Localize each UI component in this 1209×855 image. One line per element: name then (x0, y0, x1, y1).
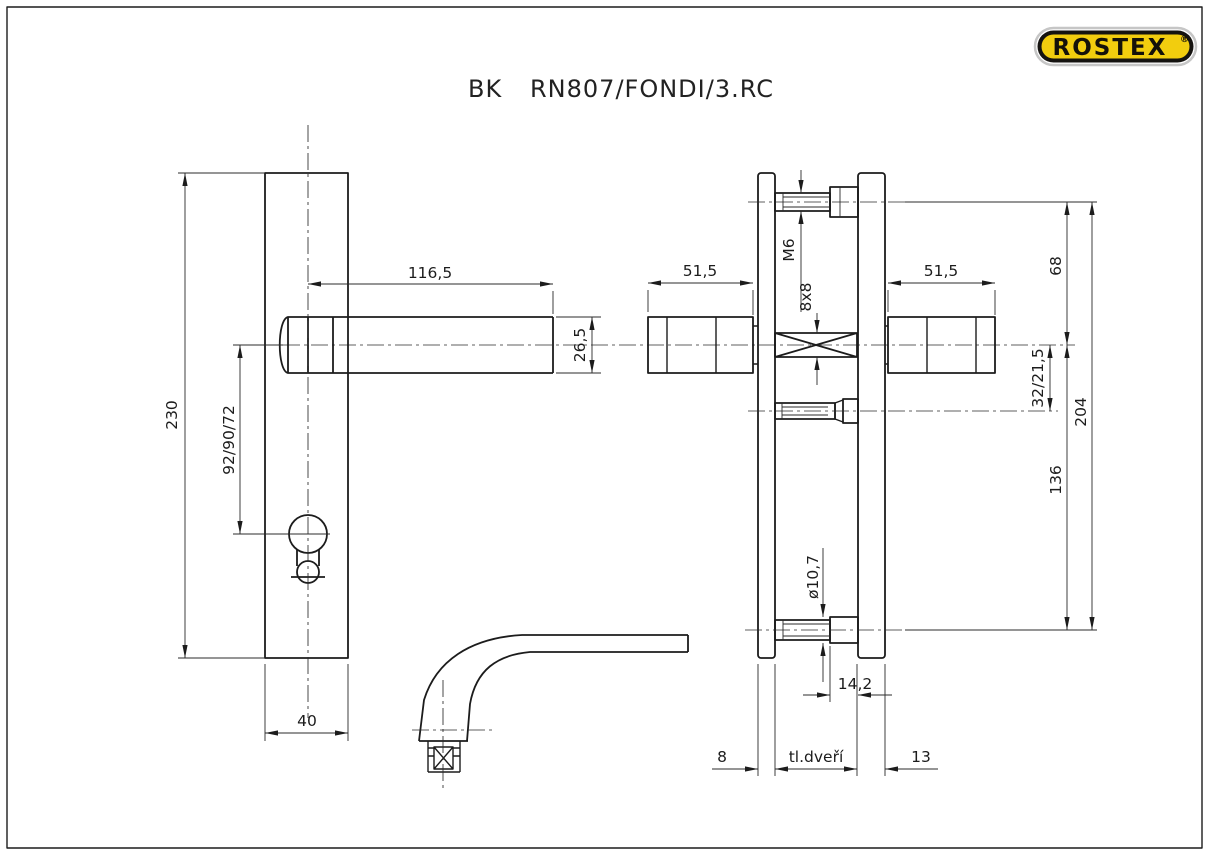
dim-axis-spacing: 92/90/72 (220, 405, 238, 475)
lever-profile-view (412, 635, 688, 792)
dim-screw-thread: M6 (780, 238, 798, 261)
lever-profile-centerlines (412, 680, 492, 792)
inner-plate-side (858, 173, 885, 658)
screw-centerlines (745, 202, 1058, 630)
dim-handle-depth-right: 51,5 (924, 262, 959, 280)
backplate-outline (265, 173, 348, 658)
dim-screw-span: 204 (1072, 397, 1090, 427)
dim-handle-thickness: 26,5 (571, 328, 589, 363)
lever-profile-outline (419, 635, 688, 741)
dim-spindle-size: 8x8 (797, 283, 815, 312)
drawing-frame (7, 7, 1202, 848)
technical-drawing: BK RN807/FONDI/3.RC ROSTEX ® 230 92/90/7… (0, 0, 1209, 855)
dim-plate-width: 40 (297, 712, 317, 730)
side-view: 51,5 51,5 M6 8x8 ø10,7 14,2 68 32/21,5 1… (648, 170, 1097, 776)
dim-top-screw-offset: 68 (1047, 256, 1065, 276)
brand-name: ROSTEX (1053, 35, 1168, 61)
dim-screw-head-len: 14,2 (838, 675, 873, 693)
drawing-page: BK RN807/FONDI/3.RC ROSTEX ® 230 92/90/7… (0, 0, 1209, 855)
dim-door-thickness: tl.dveří (789, 748, 844, 766)
brand-logo: ROSTEX ® (1035, 28, 1196, 65)
title-prefix: BK (468, 75, 502, 103)
dim-handle-depth-left: 51,5 (683, 262, 718, 280)
page-title: RN807/FONDI/3.RC (530, 75, 774, 103)
registered-mark: ® (1180, 35, 1189, 45)
dim-bottom-screw-offset: 136 (1047, 465, 1065, 495)
front-dimension-lines (178, 173, 601, 741)
dim-handle-length: 116,5 (408, 264, 452, 282)
front-view: 230 92/90/72 116,5 26,5 40 (163, 125, 601, 741)
dim-plate-height: 230 (163, 400, 181, 430)
title-block: BK RN807/FONDI/3.RC (468, 75, 774, 103)
dim-outer-plate-thickness: 8 (717, 748, 727, 766)
spindle-mount-detail (428, 741, 460, 772)
side-dimension-lines (648, 170, 1097, 776)
outer-plate-side (758, 173, 775, 658)
dim-inner-plate-thickness: 13 (911, 748, 931, 766)
dim-mid-screw-offset: 32/21,5 (1029, 348, 1047, 407)
dim-screw-head-dia: ø10,7 (804, 555, 822, 599)
